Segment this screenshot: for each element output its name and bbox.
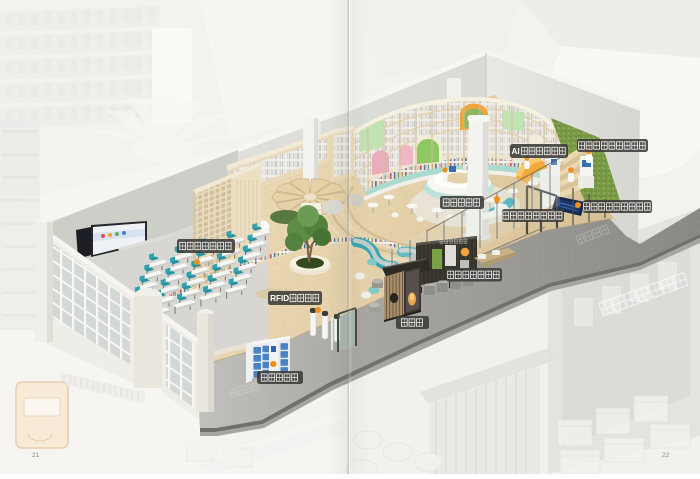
svg-text:RFID: RFID <box>270 294 289 303</box>
svg-text:22: 22 <box>662 452 670 459</box>
svg-text:21: 21 <box>32 452 40 459</box>
svg-text:AI: AI <box>512 147 520 156</box>
